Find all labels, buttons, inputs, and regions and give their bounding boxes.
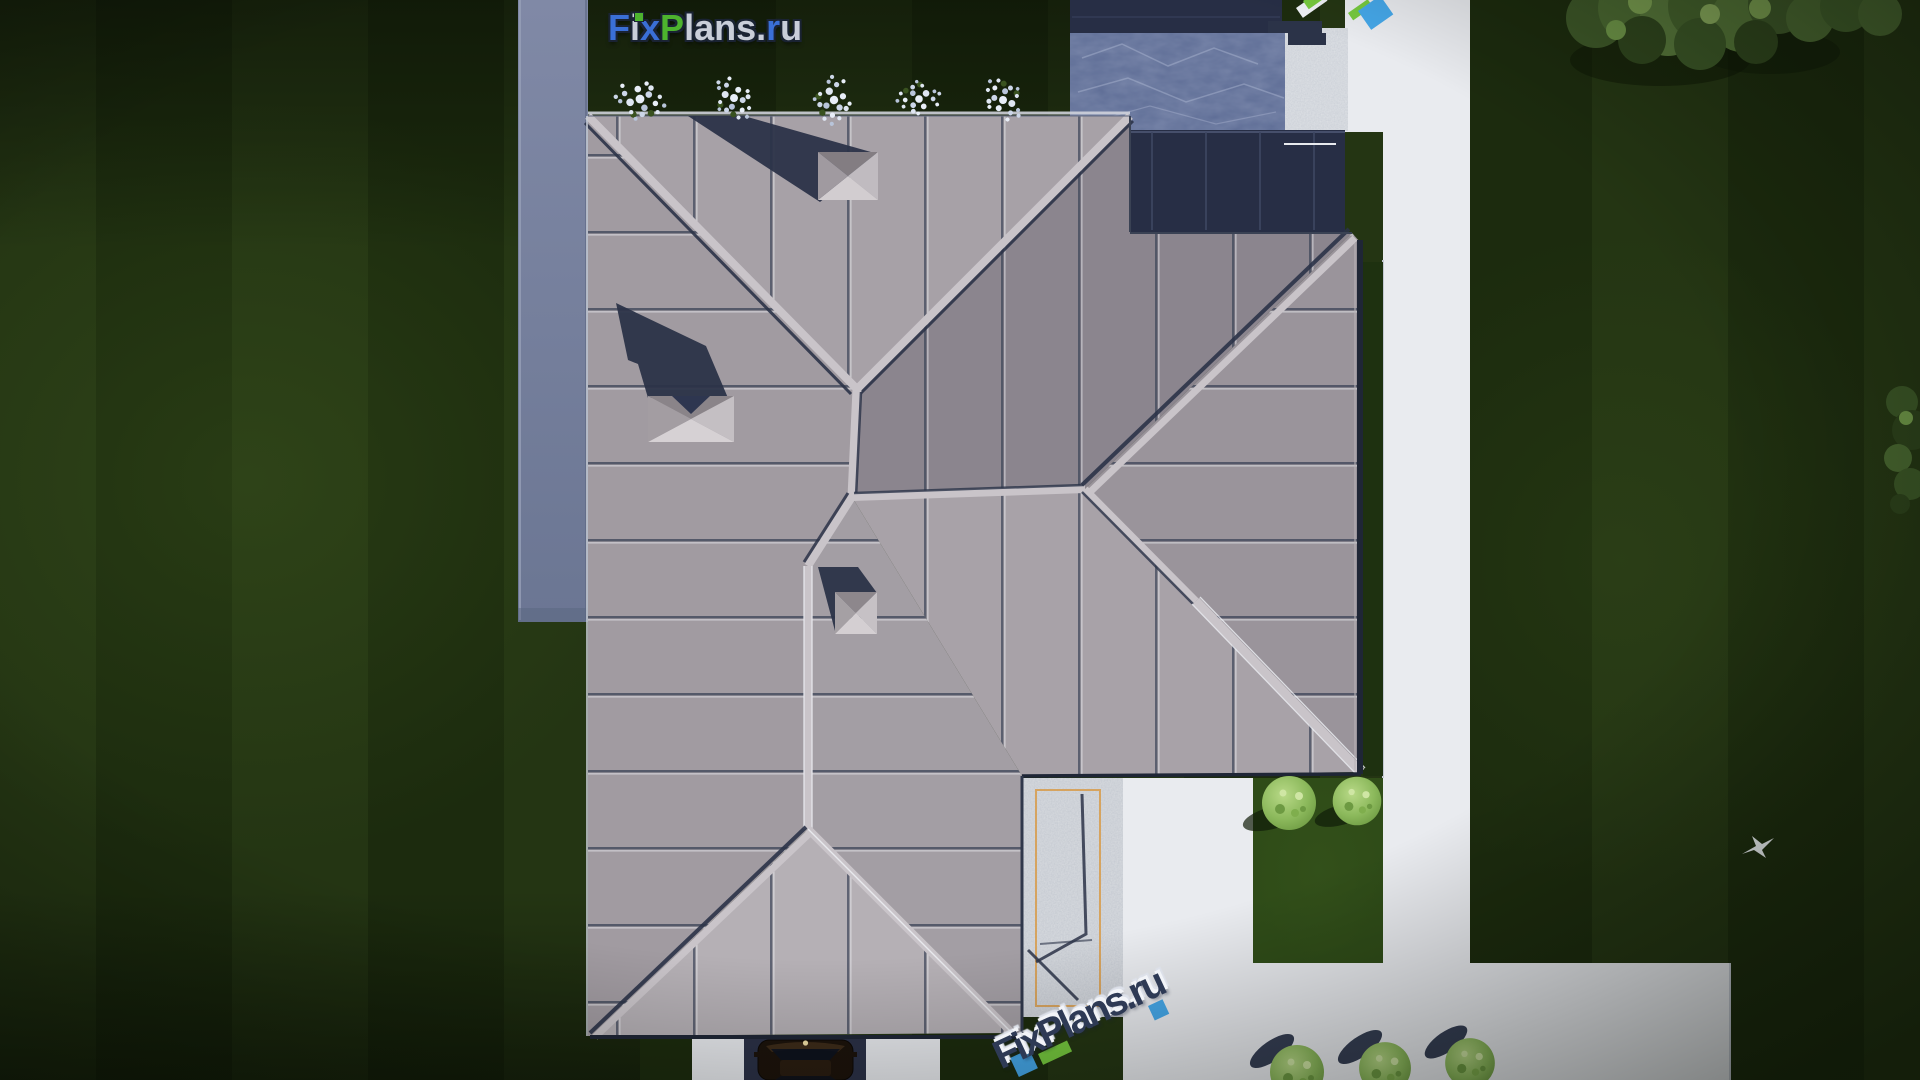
logo-i-dot: [634, 12, 644, 22]
logo-letter: s: [736, 7, 756, 48]
aerial-scene: [0, 0, 1920, 1080]
vignette: [0, 0, 1920, 1080]
logo-letter: a: [694, 7, 714, 48]
logo-letter: P: [660, 7, 684, 48]
logo-letter: n: [714, 7, 736, 48]
logo-letter: .: [756, 7, 766, 48]
logo-letter: u: [780, 7, 802, 48]
logo-letter: F: [608, 7, 630, 48]
logo-letter: l: [684, 7, 694, 48]
logo-letter: r: [766, 7, 780, 48]
site-plan-render: FixPlans.ru FixPlans.ru FixPlans.ru: [0, 0, 1920, 1080]
